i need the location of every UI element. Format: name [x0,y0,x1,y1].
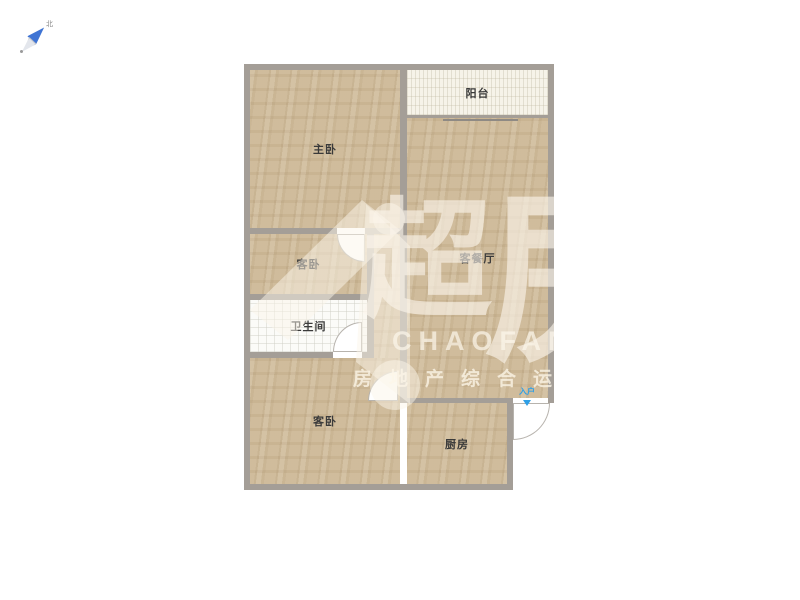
door-opening-bathroom [333,352,362,358]
room-label-balcony: 阳台 [466,85,490,101]
room-kitchen: 厨房 [407,403,507,484]
wall-bathroom-top [250,294,374,300]
compass-icon: 北 [14,16,58,58]
door-arc-entrance [513,403,550,440]
room-corridor [374,234,400,358]
room-label-master-bedroom: 主卧 [313,141,337,157]
wall-balcony-bottom [407,115,548,118]
wall-living-room-bottom [402,398,513,403]
entrance-label: 入户 [519,387,535,396]
room-guest-bedroom-bottom: 客卧 [250,358,400,484]
wall-main-divider [400,70,407,403]
entrance-arrow-icon [523,400,531,406]
entrance-marker: 入户 [514,381,540,406]
room-label-bathroom: 卫生间 [291,318,327,334]
compass-north-label: 北 [46,19,53,29]
wall-outer-bottom [244,484,513,490]
room-label-guest-bedroom-bottom: 客卧 [313,413,337,429]
room-balcony: 阳台 [407,70,548,115]
floor-plan: 主卧 阳台 客餐厅 客卧 卫生间 客卧 厨房 超 房 [244,64,554,490]
compass-tail-dot [20,50,23,53]
room-label-living-dining: 客餐厅 [460,250,496,266]
wall-master-bottom [250,228,400,234]
balcony-sliding-door-line [443,119,518,121]
wall-outer-right [548,64,554,403]
wall-outer-top [244,64,554,70]
room-label-guest-bedroom-middle: 客卧 [297,256,321,272]
room-living-dining: 客餐厅 [407,118,548,398]
wall-outer-left [244,64,250,490]
room-master-bedroom: 主卧 [250,70,400,228]
room-label-kitchen: 厨房 [445,436,469,452]
